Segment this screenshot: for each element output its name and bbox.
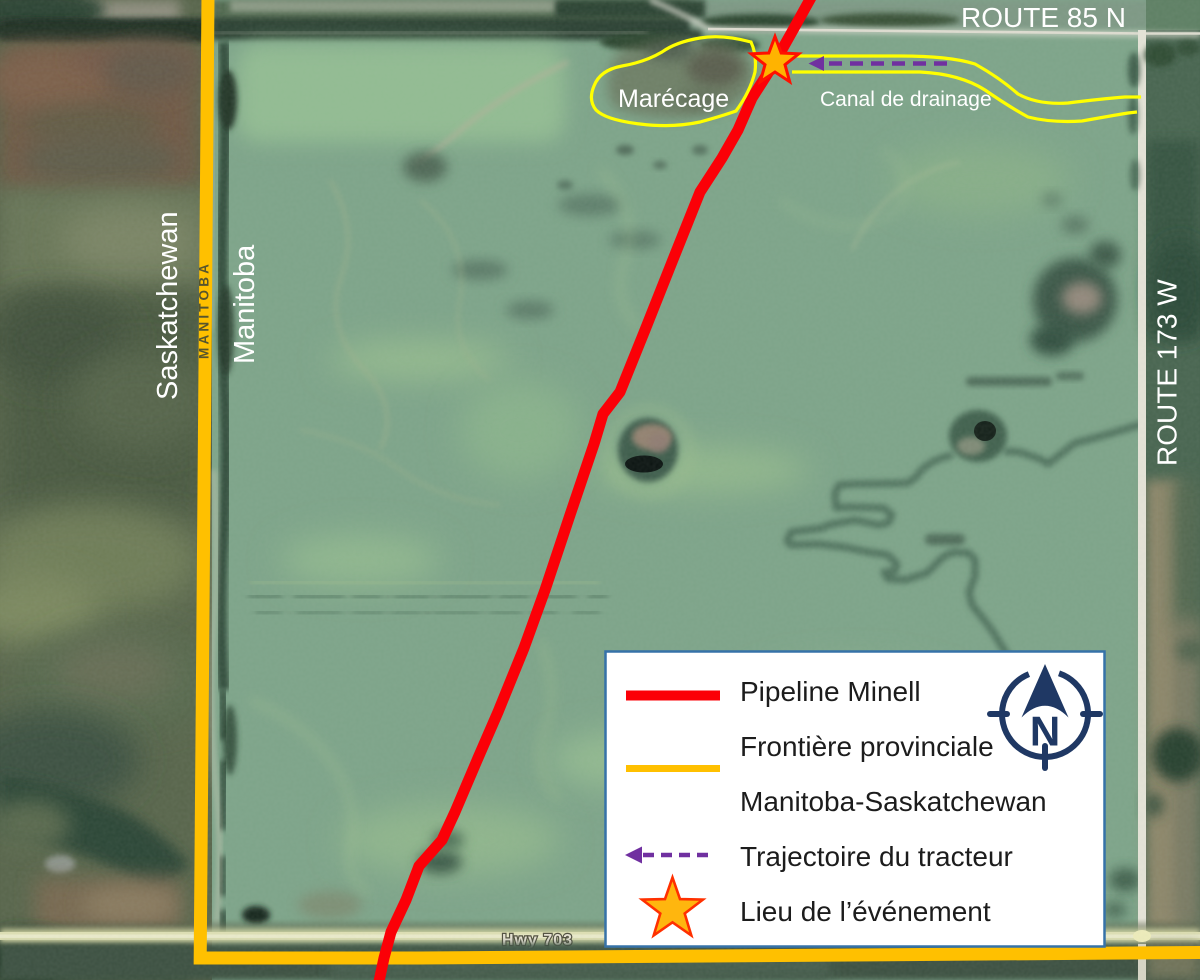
svg-text:Canal de drainage: Canal de drainage — [820, 88, 992, 111]
svg-text:Saskatchewan: Saskatchewan — [152, 211, 184, 400]
svg-text:N: N — [1030, 708, 1060, 755]
svg-text:Manitoba-Saskatchewan: Manitoba-Saskatchewan — [740, 786, 1047, 817]
svg-text:ROUTE 85 N: ROUTE 85 N — [961, 2, 1126, 33]
svg-text:ROUTE 173 W: ROUTE 173 W — [1152, 279, 1183, 466]
svg-text:MANITOBA: MANITOBA — [197, 261, 212, 359]
svg-text:Manitoba: Manitoba — [229, 244, 261, 364]
svg-text:Lieu de l’événement: Lieu de l’événement — [740, 896, 991, 927]
svg-text:Marécage: Marécage — [618, 85, 729, 113]
svg-text:Frontière provinciale: Frontière provinciale — [740, 731, 994, 762]
svg-text:Pipeline Minell: Pipeline Minell — [740, 676, 921, 707]
svg-text:Trajectoire du tracteur: Trajectoire du tracteur — [740, 841, 1013, 872]
